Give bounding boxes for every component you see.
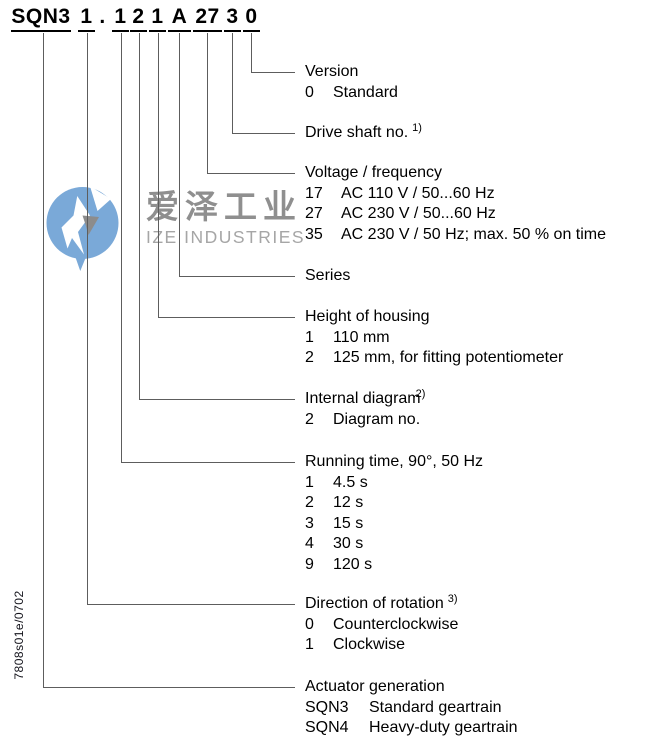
option-code: 1 (305, 328, 333, 349)
option-label: 110 mm (333, 328, 390, 349)
option-code: 2 (305, 493, 333, 514)
option-label: Standard (333, 83, 398, 104)
product-code-segment: A (168, 4, 191, 32)
code-option-row: SQN3Standard geartrain (305, 698, 647, 719)
code-option-row: 430 s (305, 534, 647, 555)
connector-hline-running-time-90-50-hz (121, 462, 295, 463)
option-label: Diagram no. (333, 410, 420, 431)
option-code: 1 (305, 473, 333, 494)
connector-hline-height-of-housing (158, 317, 295, 318)
option-label: 125 mm, for fitting potentiometer (333, 348, 563, 369)
connector-vline-drive-shaft-no (232, 33, 233, 134)
section-title: Height of housing (305, 307, 647, 328)
code-option-row: 0Standard (305, 83, 647, 104)
section-title: Drive shaft no.1) (305, 123, 647, 144)
code-option-row: 2125 mm, for fitting potentiometer (305, 348, 647, 369)
connector-vline-series (179, 33, 180, 277)
code-option-row: 35AC 230 V / 50 Hz; max. 50 % on time (305, 225, 647, 246)
connector-hline-actuator-generation (43, 687, 295, 688)
footnote-marker: 3) (448, 593, 458, 605)
option-code: 4 (305, 534, 333, 555)
product-code-segment: 0 (243, 4, 260, 32)
section-title: Actuator generation (305, 677, 647, 698)
option-code: 3 (305, 514, 333, 535)
option-label: 30 s (333, 534, 363, 555)
code-option-row: 212 s (305, 493, 647, 514)
option-label: 12 s (333, 493, 363, 514)
code-section-actuator-generation: Actuator generationSQN3Standard geartrai… (305, 677, 647, 739)
section-title: Running time, 90°, 50 Hz (305, 452, 647, 473)
connector-hline-voltage-frequency (207, 173, 295, 174)
footnote-marker: 2) (416, 388, 426, 400)
option-code: 0 (305, 615, 333, 636)
doc-reference: 7808s01e/0702 (12, 582, 28, 688)
connector-vline-direction-of-rotation (87, 33, 88, 605)
option-label: Heavy-duty geartrain (369, 718, 518, 739)
section-title: Direction of rotation3) (305, 594, 647, 615)
connector-hline-drive-shaft-no (232, 133, 295, 134)
code-option-row: 27AC 230 V / 50...60 Hz (305, 204, 647, 225)
connector-vline-version (251, 33, 252, 73)
code-section-version: Version0Standard (305, 62, 647, 103)
option-label: AC 110 V / 50...60 Hz (341, 184, 495, 205)
connector-vline-running-time-90-50-hz (121, 33, 122, 463)
connector-hline-direction-of-rotation (87, 604, 295, 605)
watermark-chinese-text: 爱泽工业 (146, 189, 305, 225)
connector-vline-height-of-housing (158, 33, 159, 318)
product-code-segment: 1 (112, 4, 129, 32)
product-code: SQN31.121A2730 (0, 0, 647, 36)
type-code-document-page: 爱泽工业 IZE INDUSTRIES SQN31.121A2730 Versi… (0, 0, 647, 751)
option-label: AC 230 V / 50...60 Hz (341, 204, 496, 225)
section-title: Series (305, 266, 647, 287)
option-code: 1 (305, 635, 333, 656)
connector-vline-internal-diagram (139, 33, 140, 400)
code-option-row: SQN4Heavy-duty geartrain (305, 718, 647, 739)
ize-logo-icon (45, 185, 120, 273)
code-section-direction-of-rotation: Direction of rotation3)0Counterclockwise… (305, 594, 647, 656)
code-section-running-time-90-50-hz: Running time, 90°, 50 Hz14.5 s212 s315 s… (305, 452, 647, 575)
code-option-row: 1Clockwise (305, 635, 647, 656)
option-code: 2 (305, 348, 333, 369)
option-label: Counterclockwise (333, 615, 458, 636)
option-code: 9 (305, 555, 333, 576)
product-code-segment: SQN3 (11, 4, 71, 32)
product-code-segment: 1 (149, 4, 166, 32)
product-code-segment: 27 (193, 4, 222, 32)
product-code-segment: . (96, 4, 109, 30)
connector-hline-version (251, 72, 295, 73)
footnote-marker: 1) (412, 122, 422, 134)
option-code: 0 (305, 83, 333, 104)
connector-hline-series (179, 276, 295, 277)
option-code: 35 (305, 225, 341, 246)
option-label: AC 230 V / 50 Hz; max. 50 % on time (341, 225, 606, 246)
option-label: 15 s (333, 514, 363, 535)
option-label: 4.5 s (333, 473, 368, 494)
code-option-row: 9120 s (305, 555, 647, 576)
code-option-row: 1110 mm (305, 328, 647, 349)
option-code: 27 (305, 204, 341, 225)
code-section-height-of-housing: Height of housing1110 mm2125 mm, for fit… (305, 307, 647, 369)
option-label: Standard geartrain (369, 698, 502, 719)
section-title: Internal diagram2) (305, 389, 647, 410)
product-code-segment: 1 (78, 4, 95, 32)
section-title: Voltage / frequency (305, 163, 647, 184)
option-label: Clockwise (333, 635, 405, 656)
code-option-row: 14.5 s (305, 473, 647, 494)
option-code: SQN3 (305, 698, 369, 719)
option-code: 17 (305, 184, 341, 205)
code-option-row: 2Diagram no. (305, 410, 647, 431)
code-section-series: Series (305, 266, 647, 287)
connector-hline-internal-diagram (139, 399, 295, 400)
watermark-english-text: IZE INDUSTRIES (146, 227, 305, 247)
connector-vline-voltage-frequency (207, 33, 208, 174)
product-code-segment: 3 (224, 4, 241, 32)
product-code-segment: 2 (130, 4, 147, 32)
option-code: SQN4 (305, 718, 369, 739)
option-code: 2 (305, 410, 333, 431)
option-label: 120 s (333, 555, 372, 576)
code-section-voltage-frequency: Voltage / frequency17AC 110 V / 50...60 … (305, 163, 647, 245)
code-option-row: 315 s (305, 514, 647, 535)
code-option-row: 0Counterclockwise (305, 615, 647, 636)
code-section-internal-diagram: Internal diagram2)2Diagram no. (305, 389, 647, 430)
code-section-drive-shaft-no: Drive shaft no.1) (305, 123, 647, 144)
section-title: Version (305, 62, 647, 83)
watermark-text: 爱泽工业 IZE INDUSTRIES (146, 189, 305, 247)
connector-vline-actuator-generation (43, 33, 44, 688)
code-option-row: 17AC 110 V / 50...60 Hz (305, 184, 647, 205)
